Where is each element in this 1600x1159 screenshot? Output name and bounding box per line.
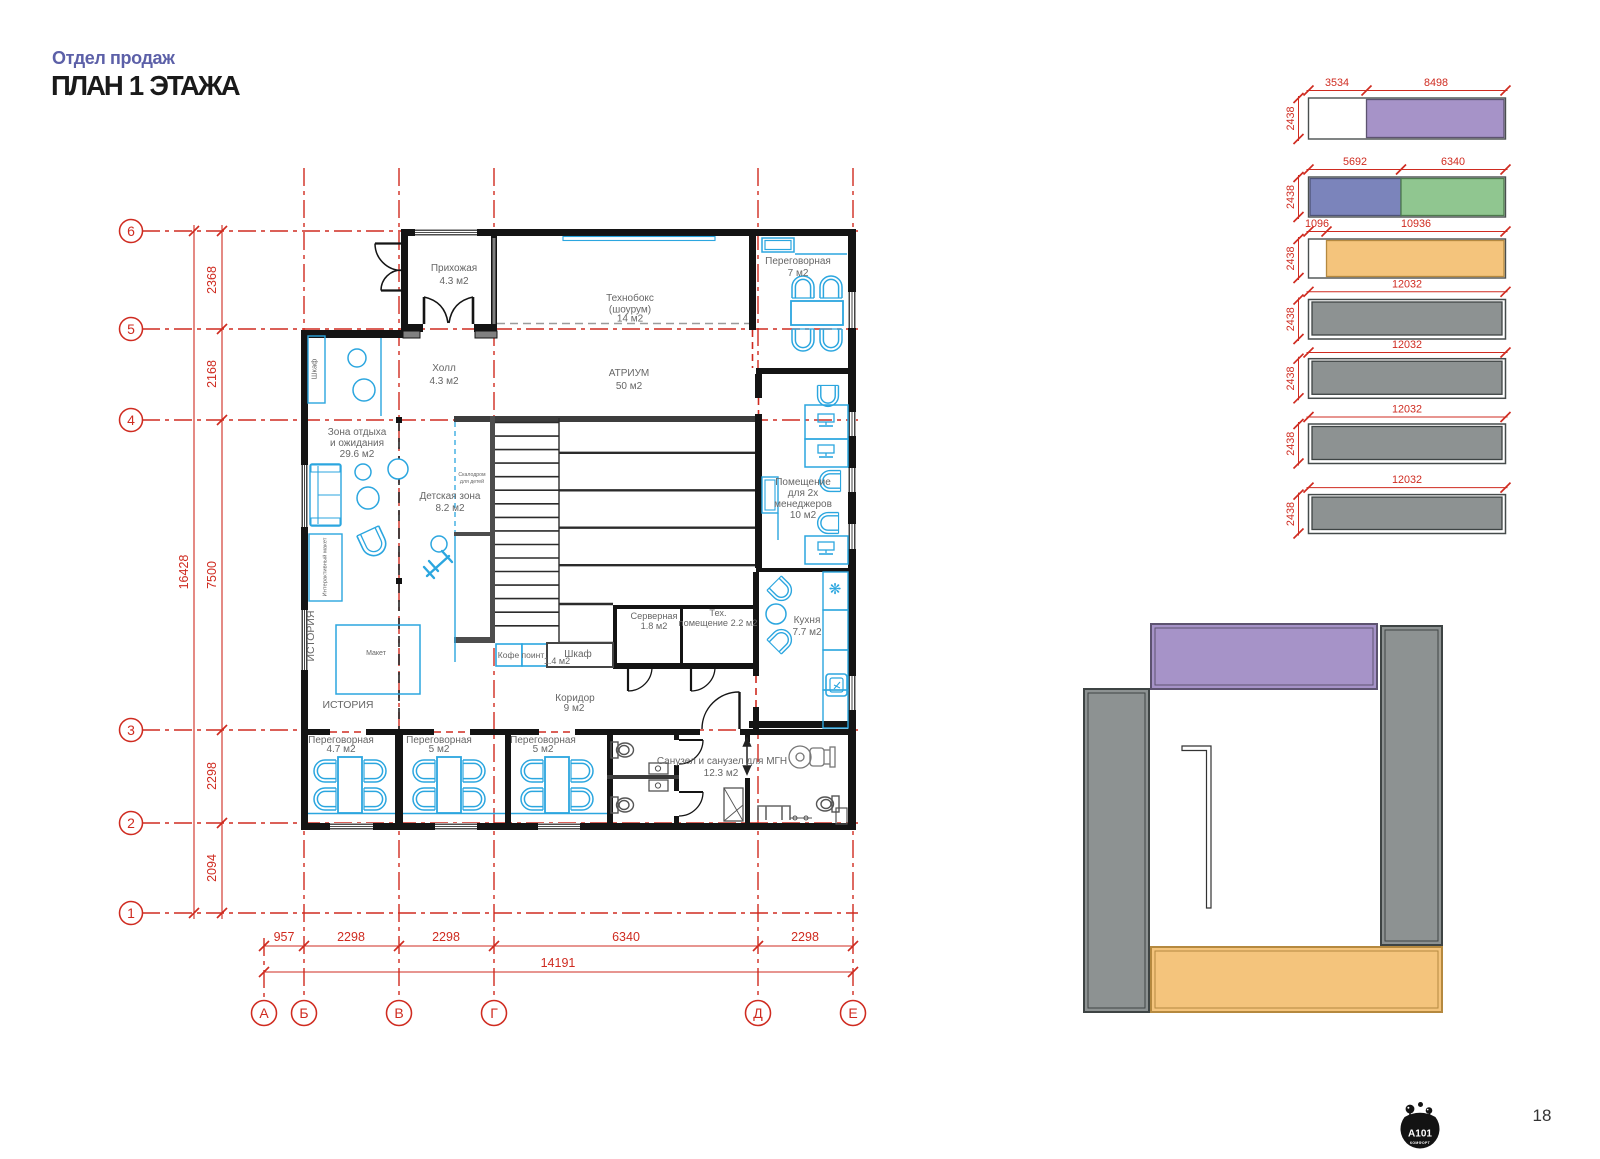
- svg-text:АТРИУМ: АТРИУМ: [609, 368, 650, 379]
- svg-text:КОМФОРТ: КОМФОРТ: [1410, 1141, 1431, 1145]
- svg-text:Зона отдыха: Зона отдыха: [328, 427, 387, 438]
- svg-text:2438: 2438: [1285, 502, 1297, 526]
- svg-text:2438: 2438: [1285, 432, 1297, 456]
- svg-text:5692: 5692: [1343, 156, 1367, 168]
- svg-text:Г: Г: [490, 1005, 498, 1021]
- svg-text:А: А: [259, 1005, 269, 1021]
- svg-text:7 м2: 7 м2: [788, 268, 809, 279]
- svg-text:12032: 12032: [1392, 278, 1422, 290]
- svg-text:менеджеров: менеджеров: [774, 499, 832, 510]
- svg-text:Тех.: Тех.: [709, 608, 726, 618]
- svg-text:2438: 2438: [1285, 246, 1297, 270]
- svg-text:18: 18: [1533, 1106, 1552, 1125]
- svg-text:для детей: для детей: [460, 478, 484, 485]
- svg-text:1.8 м2: 1.8 м2: [641, 621, 668, 631]
- svg-text:5: 5: [127, 321, 135, 337]
- svg-text:4.3 м2: 4.3 м2: [429, 376, 459, 387]
- svg-text:4: 4: [127, 412, 135, 428]
- svg-text:Серверная: Серверная: [630, 611, 677, 621]
- svg-text:7.7 м2: 7.7 м2: [792, 627, 822, 638]
- svg-text:16428: 16428: [177, 555, 191, 590]
- svg-text:2094: 2094: [205, 854, 219, 882]
- svg-text:Холл: Холл: [432, 363, 456, 374]
- svg-text:5 м2: 5 м2: [429, 744, 450, 755]
- svg-text:и ожидания: и ожидания: [330, 438, 384, 449]
- svg-text:6: 6: [127, 223, 135, 239]
- svg-text:Интерактивный макет: Интерактивный макет: [322, 537, 329, 596]
- svg-text:7500: 7500: [205, 561, 219, 589]
- svg-text:3534: 3534: [1325, 77, 1349, 89]
- svg-text:5 м2: 5 м2: [533, 744, 554, 755]
- svg-text:Б: Б: [299, 1005, 308, 1021]
- svg-text:50 м2: 50 м2: [616, 381, 643, 392]
- svg-text:Помещение: Помещение: [775, 477, 831, 488]
- svg-text:957: 957: [274, 930, 295, 944]
- svg-text:6340: 6340: [612, 930, 640, 944]
- svg-text:12032: 12032: [1392, 339, 1422, 351]
- svg-text:2298: 2298: [791, 930, 819, 944]
- svg-text:4.3 м2: 4.3 м2: [439, 276, 469, 287]
- svg-text:2298: 2298: [337, 930, 365, 944]
- svg-text:2438: 2438: [1285, 185, 1297, 209]
- svg-text:В: В: [394, 1005, 403, 1021]
- svg-text:4.7 м2: 4.7 м2: [326, 744, 356, 755]
- svg-text:2438: 2438: [1285, 106, 1297, 130]
- svg-text:для 2х: для 2х: [788, 488, 818, 499]
- svg-text:Санузел и санузел для МГН: Санузел и санузел для МГН: [657, 756, 787, 767]
- svg-text:9 м2: 9 м2: [564, 703, 585, 714]
- svg-text:1.4 м2: 1.4 м2: [544, 656, 570, 666]
- svg-text:Прихожая: Прихожая: [431, 263, 477, 274]
- svg-text:❋: ❋: [829, 581, 842, 598]
- svg-text:Кухня: Кухня: [794, 615, 821, 626]
- svg-text:10936: 10936: [1401, 218, 1431, 230]
- svg-text:6340: 6340: [1441, 156, 1465, 168]
- svg-text:12032: 12032: [1392, 474, 1422, 486]
- svg-text:помещение 2.2 м2: помещение 2.2 м2: [679, 618, 758, 628]
- svg-text:Технобокс: Технобокс: [606, 292, 654, 304]
- svg-text:Скалодром: Скалодром: [458, 472, 486, 478]
- svg-text:10 м2: 10 м2: [790, 510, 817, 521]
- svg-text:Детская зона: Детская зона: [420, 491, 481, 502]
- svg-text:А101: А101: [1408, 1129, 1432, 1140]
- svg-text:Е: Е: [848, 1005, 857, 1021]
- svg-text:2368: 2368: [205, 266, 219, 294]
- svg-text:3: 3: [127, 722, 135, 738]
- svg-text:2298: 2298: [432, 930, 460, 944]
- svg-text:12032: 12032: [1392, 404, 1422, 416]
- svg-text:Переговорная: Переговорная: [765, 256, 831, 267]
- svg-text:ИСТОРИЯ: ИСТОРИЯ: [322, 699, 373, 711]
- svg-text:14 м2: 14 м2: [617, 314, 644, 325]
- svg-text:14191: 14191: [541, 956, 576, 970]
- svg-text:Кофе поинт: Кофе поинт: [498, 650, 545, 660]
- svg-text:Шкаф: Шкаф: [310, 359, 319, 380]
- svg-text:8.2 м2: 8.2 м2: [435, 503, 465, 514]
- svg-text:Д: Д: [753, 1005, 763, 1021]
- svg-text:29.6 м2: 29.6 м2: [340, 449, 375, 460]
- svg-text:2438: 2438: [1285, 307, 1297, 331]
- svg-text:8498: 8498: [1424, 77, 1448, 89]
- svg-text:2298: 2298: [205, 762, 219, 790]
- svg-text:2168: 2168: [205, 360, 219, 388]
- svg-text:2: 2: [127, 815, 135, 831]
- svg-text:1096: 1096: [1305, 218, 1329, 230]
- svg-text:12.3 м2: 12.3 м2: [704, 768, 739, 779]
- svg-text:Макет: Макет: [366, 650, 387, 657]
- svg-text:1: 1: [127, 905, 135, 921]
- svg-text:2438: 2438: [1285, 366, 1297, 390]
- svg-text:ИСТОРИЯ: ИСТОРИЯ: [305, 610, 317, 661]
